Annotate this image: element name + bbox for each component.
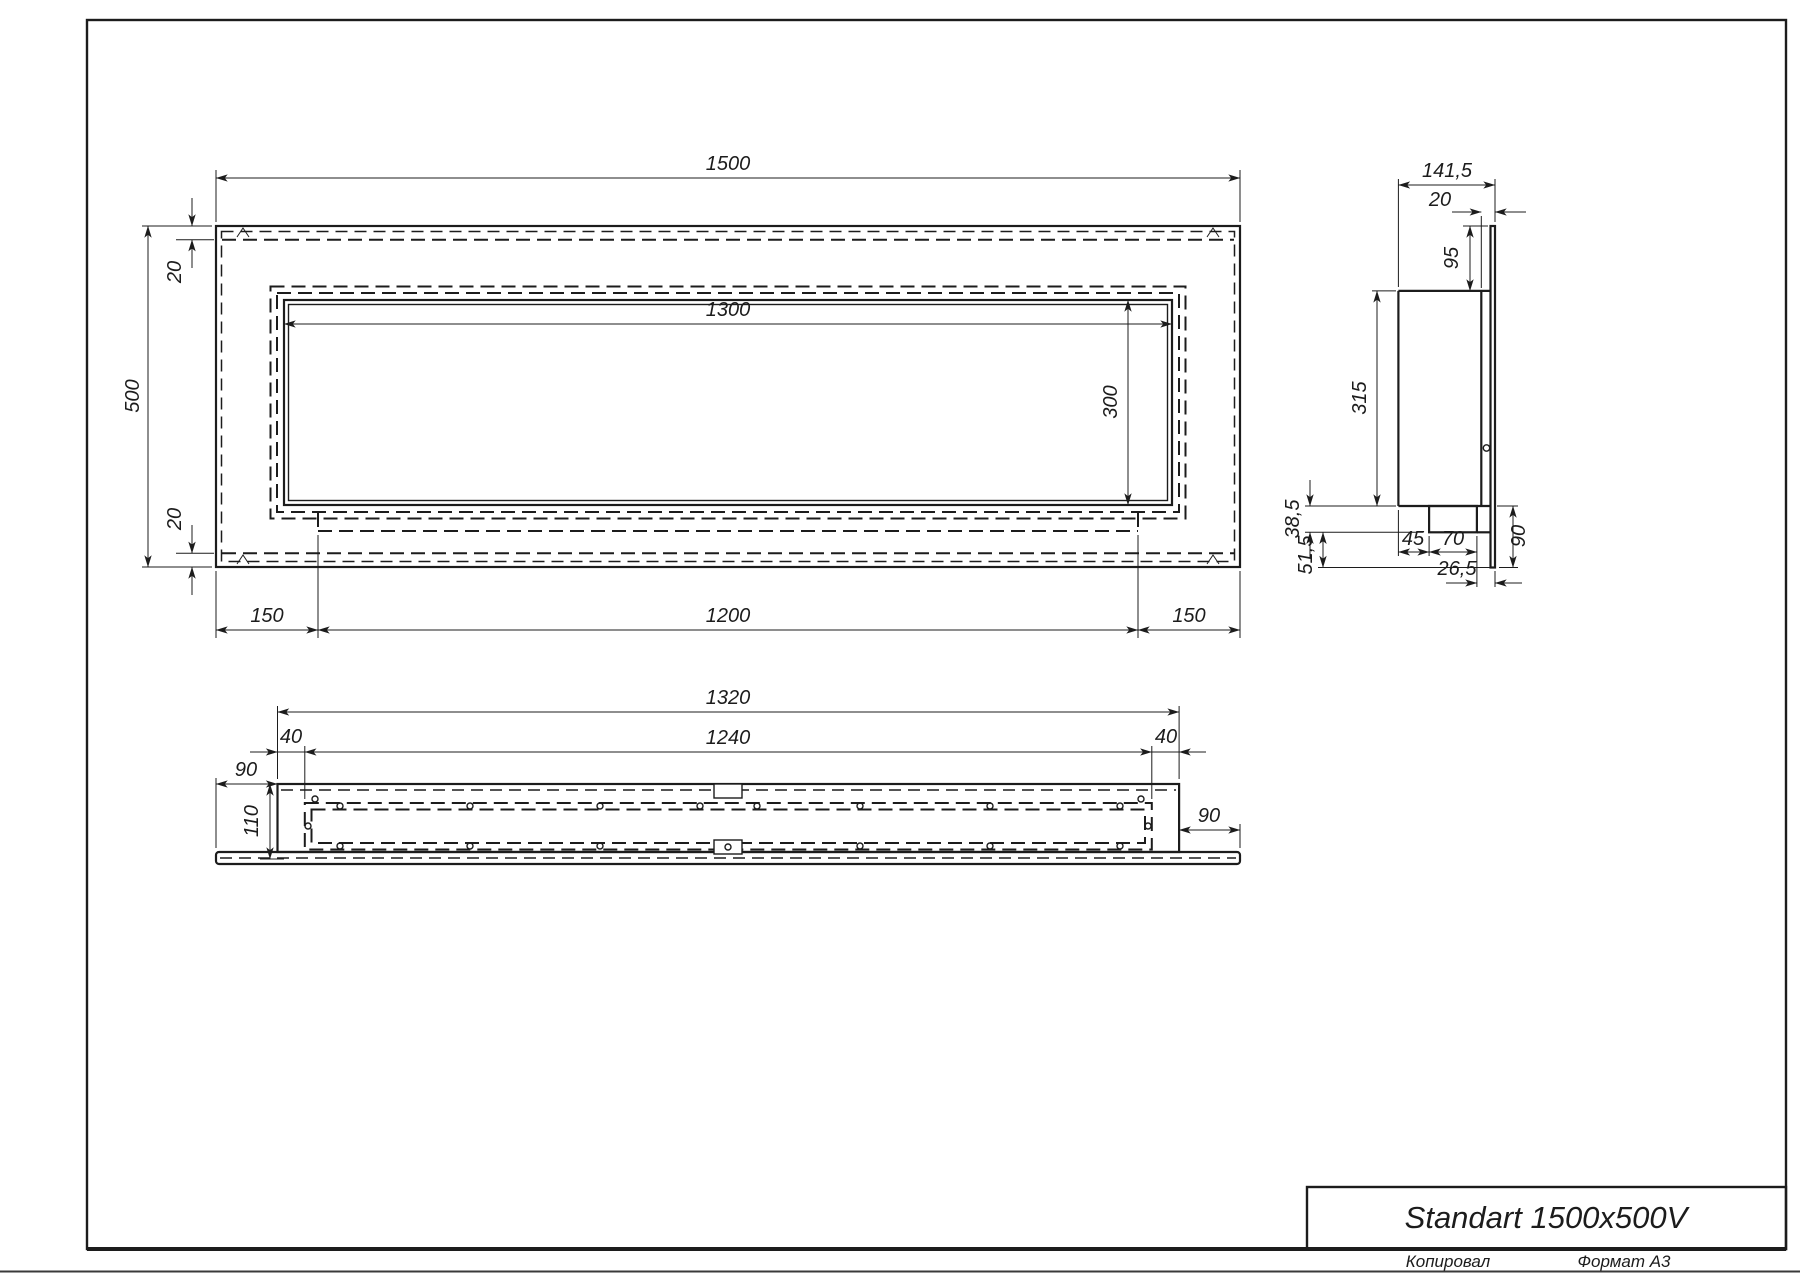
dim-front-top-inset: 20	[164, 198, 214, 284]
front-outer-body	[216, 226, 1240, 567]
dim-label-51-5: 51,5	[1295, 535, 1317, 575]
dim-label-500: 500	[122, 379, 144, 412]
dim-label-20-top: 20	[164, 261, 186, 284]
bottom-bottom-notch	[714, 840, 742, 854]
dim-front-opening-width: 1300	[284, 299, 1172, 324]
dim-label-1240: 1240	[706, 727, 751, 749]
dim-label-45: 45	[1402, 528, 1425, 550]
technical-drawing: 1500 500 20 20 1300	[0, 0, 1800, 1273]
copied-label: Копировал	[1406, 1252, 1491, 1271]
dim-label-95: 95	[1441, 246, 1463, 269]
dim-label-1200: 1200	[706, 605, 751, 627]
dim-label-90-left: 90	[235, 759, 257, 781]
dim-front-bottom-inset: 20	[164, 508, 214, 595]
front-view: 1500 500 20 20 1300	[122, 153, 1240, 638]
bottom-top-notch	[714, 784, 742, 798]
mount-frame-outer	[271, 287, 1186, 519]
front-opening	[284, 300, 1172, 505]
mount-frame-inner	[277, 293, 1179, 512]
side-view: 141,5 20 95 315 38,5	[1282, 160, 1530, 587]
dim-label-141-5: 141,5	[1422, 160, 1473, 182]
side-front-plate	[1491, 226, 1496, 568]
dim-label-1320: 1320	[706, 687, 751, 709]
dim-label-150-left: 150	[250, 605, 283, 627]
dim-label-300: 300	[1100, 385, 1122, 418]
dim-label-1500: 1500	[706, 153, 751, 175]
dim-label-20-side: 20	[1428, 189, 1451, 211]
dim-label-90-right: 90	[1198, 805, 1220, 827]
weld-marks	[237, 228, 1219, 564]
dim-front-bottom-row: 150 1200 150	[216, 535, 1240, 638]
dim-label-90-side: 90	[1508, 525, 1530, 547]
dim-label-20-bottom: 20	[164, 508, 186, 531]
dim-front-opening-height: 300	[1100, 300, 1128, 505]
sheet-frame	[0, 20, 1800, 1272]
dim-label-110: 110	[241, 805, 263, 837]
bottom-opening-hidden-inner	[312, 810, 1146, 844]
format-label: Формат А3	[1577, 1252, 1671, 1271]
dim-label-315: 315	[1349, 380, 1371, 414]
dim-side-front-gap: 26,5	[1437, 558, 1522, 587]
dim-label-40-right: 40	[1155, 726, 1177, 748]
dim-side-glass-offset: 20	[1428, 189, 1526, 288]
bottom-view: 1320 1240 40 40 90 90	[216, 687, 1240, 864]
dim-side-body-height: 315	[1305, 291, 1396, 506]
dim-side-lower-height: 90	[1497, 506, 1530, 568]
side-hole	[1483, 445, 1489, 451]
dim-label-40-left: 40	[280, 726, 302, 748]
dim-label-26-5: 26,5	[1437, 558, 1478, 580]
dim-label-70: 70	[1442, 528, 1464, 550]
drawing-sheet: 1500 500 20 20 1300	[0, 0, 1800, 1273]
title-block: Standart 1500x500V Копировал Формат А3	[1307, 1187, 1786, 1271]
dim-front-total-width: 1500	[216, 153, 1240, 222]
dim-label-150-right: 150	[1172, 605, 1205, 627]
dim-label-1300: 1300	[706, 299, 751, 321]
dim-bottom-flange-right: 90	[1179, 805, 1240, 848]
title-block-name: Standart 1500x500V	[1405, 1200, 1691, 1235]
dim-label-38-5: 38,5	[1282, 499, 1304, 539]
